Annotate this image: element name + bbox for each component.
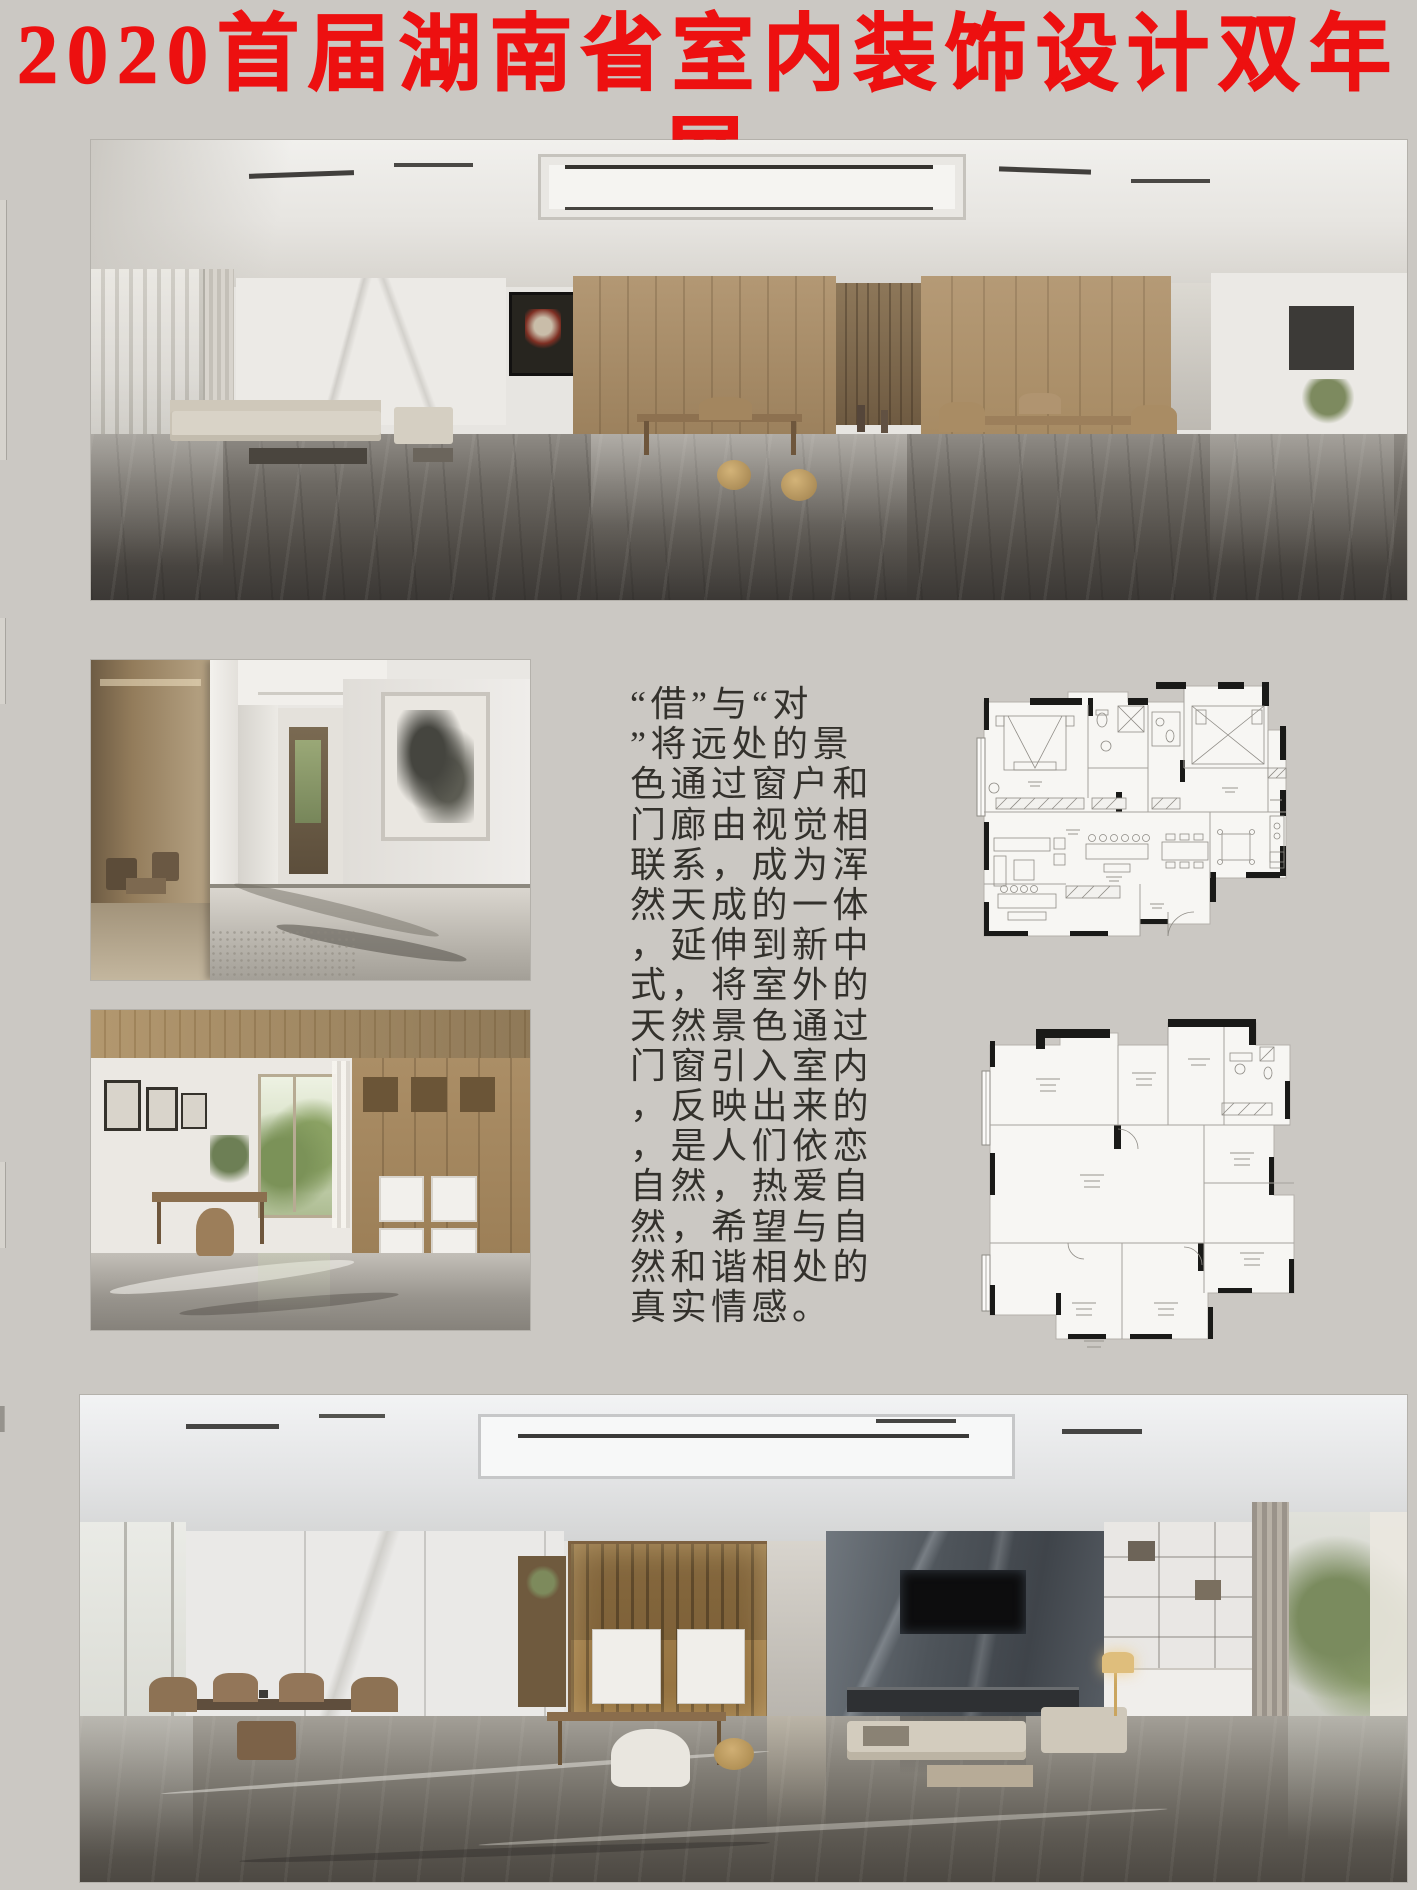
drawer-unit	[431, 1176, 477, 1222]
garden-view	[295, 740, 321, 823]
table-lamp	[1102, 1652, 1134, 1672]
ceiling-cove	[538, 154, 965, 220]
shelf-niche	[411, 1077, 446, 1112]
essay-line: 门廊由视觉相	[630, 805, 896, 845]
desk-leg	[644, 421, 649, 456]
photo-study	[91, 1010, 530, 1330]
tea-chair	[1131, 405, 1177, 435]
vent	[1062, 1429, 1142, 1434]
shelf-niche	[363, 1077, 398, 1112]
essay-line: ，延伸到新中	[630, 925, 896, 965]
desk-leg	[791, 421, 796, 456]
throw-blanket	[863, 1726, 909, 1745]
appliance	[1289, 306, 1355, 370]
sofa	[170, 411, 381, 441]
vent	[394, 163, 473, 167]
coffee-table	[927, 1765, 1033, 1787]
design-statement: “借”与“对 ”将远处的景 色通过窗户和 门廊由视觉相 联系，成为浑 然天成的一…	[630, 684, 896, 1327]
passage	[767, 1541, 825, 1716]
table	[126, 878, 166, 894]
vent	[319, 1414, 385, 1418]
shelf-item	[1195, 1580, 1222, 1599]
plant	[526, 1565, 561, 1599]
essay-line: “借”与“对	[630, 684, 896, 724]
photo-corridor	[91, 660, 530, 980]
picture-frame	[104, 1080, 141, 1131]
wood-slat-ceiling	[91, 1010, 530, 1058]
essay-line: 联系，成为浑	[630, 845, 896, 885]
picture-frame	[181, 1093, 207, 1129]
essay-line: ，反映出来的	[630, 1086, 896, 1126]
floor-reflection	[91, 434, 223, 600]
corridor-left-wall	[238, 705, 278, 891]
desk-leg	[260, 1202, 264, 1244]
drawer-unit	[379, 1176, 425, 1222]
photo-living-hall	[91, 140, 1407, 600]
essay-line: ”将远处的景	[630, 724, 896, 764]
terrazzo-speckle	[210, 929, 359, 980]
floor-reflection	[1210, 434, 1394, 600]
window-garden-view	[258, 1074, 336, 1218]
cabinet-door	[592, 1629, 660, 1704]
essay-line: 自然，热爱自	[630, 1166, 896, 1206]
artwork	[381, 692, 490, 841]
lower-cabinet	[1104, 1668, 1274, 1719]
light-slot	[518, 1434, 969, 1438]
arched-niche	[836, 283, 922, 426]
armchair	[394, 407, 453, 444]
tv-screen	[900, 1570, 1026, 1633]
tea-chair	[939, 402, 985, 432]
essay-line: 然天成的一体	[630, 885, 896, 925]
tea-table	[960, 416, 1131, 425]
artwork-motif	[525, 309, 561, 352]
hallway-opening	[1171, 283, 1210, 430]
exhibition-poster: 2020首届湖南省室内装饰设计双年展	[0, 0, 1417, 1890]
chair	[196, 1208, 233, 1256]
plant	[1302, 379, 1355, 425]
essay-line: 门窗引入室内	[630, 1046, 896, 1086]
dining-chair	[279, 1673, 324, 1702]
light-slot	[565, 165, 933, 169]
gold-stool	[714, 1738, 754, 1770]
sculpture	[857, 405, 865, 433]
floor-reflection	[80, 1716, 193, 1882]
shelf-niche	[460, 1077, 495, 1112]
floor-reflection	[767, 1716, 825, 1833]
photo-living-dining-hall	[80, 1395, 1407, 1882]
floor-plan-2	[972, 1007, 1302, 1367]
sculpture	[881, 410, 888, 433]
artwork	[509, 292, 576, 376]
dining-chair	[213, 1673, 258, 1702]
shelf-item	[1128, 1541, 1155, 1560]
desk	[152, 1192, 266, 1202]
edge-artifact	[0, 618, 6, 704]
stool	[717, 460, 751, 490]
essay-line: 天然景色通过	[630, 1006, 896, 1046]
essay-line: ，是人们依恋	[630, 1126, 896, 1166]
light-slot	[565, 207, 933, 210]
side-table	[413, 448, 452, 462]
vent	[876, 1419, 956, 1423]
artwork-motif	[397, 710, 474, 823]
window-left	[80, 1522, 186, 1746]
tea-set	[259, 1690, 268, 1698]
room-floor	[91, 903, 210, 980]
desk-leg	[558, 1721, 562, 1765]
vent	[186, 1424, 279, 1429]
dining-chair	[149, 1677, 197, 1711]
floor-plan-1	[970, 672, 1298, 948]
plant	[210, 1135, 250, 1193]
essay-line: 真实情感。	[630, 1287, 896, 1327]
edge-artifact	[0, 1162, 6, 1248]
essay-line: 式，将室外的	[630, 965, 896, 1005]
edge-artifact	[0, 1406, 5, 1432]
coffee-table	[249, 448, 367, 464]
essay-line: 色通过窗户和	[630, 764, 896, 804]
dining-chair	[351, 1677, 399, 1711]
essay-line: 然，希望与自	[630, 1207, 896, 1247]
sheer-curtain	[1370, 1512, 1407, 1746]
vent	[1131, 179, 1210, 183]
lamp-stem	[1114, 1668, 1117, 1717]
edge-artifact	[0, 200, 7, 460]
chair	[152, 852, 178, 881]
tea-chair	[1019, 393, 1061, 414]
desk-chair	[699, 397, 752, 420]
cabinet-door	[677, 1629, 745, 1704]
floor-reflection	[1288, 1716, 1407, 1862]
essay-line: 然和谐相处的	[630, 1247, 896, 1287]
picture-frame	[146, 1087, 178, 1131]
writing-desk	[547, 1712, 726, 1721]
desk-leg	[157, 1202, 161, 1244]
stool	[781, 469, 817, 501]
window-reflection	[258, 1253, 330, 1317]
floor-reflection	[591, 434, 907, 600]
dining-chair	[237, 1721, 297, 1760]
ceiling-shade	[91, 140, 354, 287]
cove-light	[100, 679, 201, 686]
sheer-curtain	[332, 1061, 350, 1227]
ceiling-cove	[478, 1414, 1015, 1478]
window-mullion	[293, 1074, 296, 1212]
white-armchair	[611, 1729, 691, 1787]
